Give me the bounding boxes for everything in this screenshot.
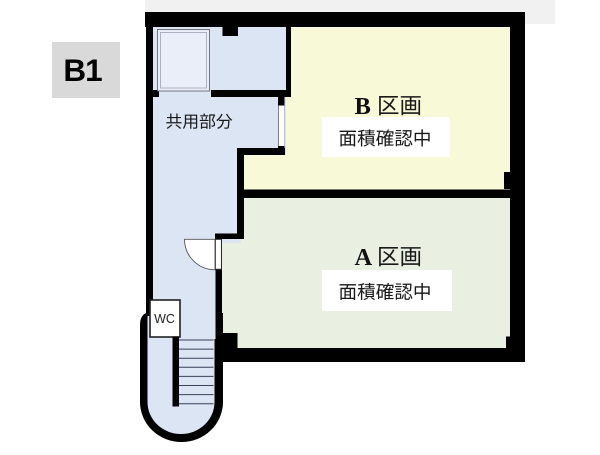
svg-text:B1: B1 xyxy=(63,52,102,88)
svg-text:B: B xyxy=(355,93,371,120)
svg-text:A: A xyxy=(355,244,373,271)
svg-text:WC: WC xyxy=(154,312,175,326)
